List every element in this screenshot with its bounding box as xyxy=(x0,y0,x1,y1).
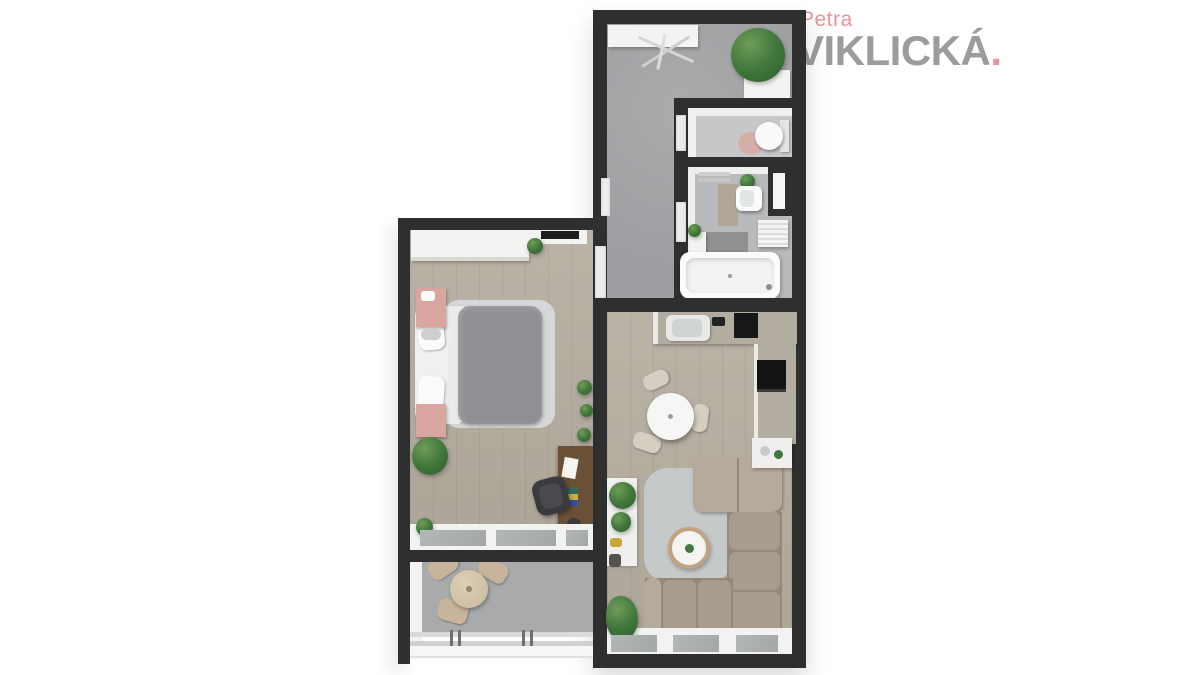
brand-dot: . xyxy=(990,27,1001,74)
living-window-pane xyxy=(611,635,657,652)
bedroom-window-pane xyxy=(496,530,556,546)
shelf-plant xyxy=(774,450,783,459)
office-chair-seat xyxy=(537,482,564,511)
brand-last-name: VIKLICKÁ. xyxy=(796,30,1076,72)
kitchen-sink-basin xyxy=(672,319,702,337)
sofa-seam xyxy=(737,458,739,512)
kitchen-counter-right xyxy=(754,344,796,444)
coffee-table xyxy=(668,527,710,569)
coffee-table-plant xyxy=(685,544,694,553)
wardrobe xyxy=(411,230,529,261)
bathtub-drain xyxy=(728,274,732,278)
living-window-pane xyxy=(673,635,719,652)
shelf-decor-yellow xyxy=(610,538,622,547)
sofa-cushion xyxy=(663,580,696,632)
bedroom-tv xyxy=(541,231,579,239)
sofa-right-section xyxy=(727,512,782,634)
toilet xyxy=(755,122,783,150)
shelf-decor xyxy=(760,446,770,456)
bedroom-window-pane xyxy=(566,530,588,546)
bedroom-plant-large xyxy=(412,437,448,475)
bedroom-door xyxy=(595,246,606,298)
railing-post xyxy=(458,630,461,646)
railing-post xyxy=(522,630,525,646)
shelf-plant-large xyxy=(609,482,636,509)
living-window-pane xyxy=(736,635,778,652)
bathtub-faucet xyxy=(766,284,772,290)
dining-table xyxy=(647,393,694,440)
railing-post xyxy=(530,630,533,646)
railing-post xyxy=(450,630,453,646)
wc-wall-face xyxy=(688,108,792,116)
bathtub xyxy=(680,252,780,299)
bathroom-cabinet-plant xyxy=(688,224,701,237)
brand-last-name-text: VIKLICKÁ xyxy=(796,27,990,74)
wardrobe-plant xyxy=(527,238,543,254)
tissue-box xyxy=(421,291,435,301)
bathroom-door xyxy=(676,202,686,242)
bedside-tray xyxy=(421,329,441,340)
kitchen-sink xyxy=(666,315,710,341)
balcony-table xyxy=(450,570,488,608)
floor-plan-scene: Petra VIKLICKÁ. xyxy=(0,0,1200,675)
nightstand xyxy=(416,404,446,437)
bath-mat-gray xyxy=(702,232,748,254)
sofa-cushion xyxy=(729,552,780,590)
washing-machine xyxy=(758,220,788,247)
sofa-armrest xyxy=(645,578,661,634)
dining-table-center xyxy=(668,414,673,419)
balcony-table-center xyxy=(466,586,472,592)
bath-mat-beige xyxy=(718,184,738,226)
built-in-oven xyxy=(757,360,786,392)
bed-blanket xyxy=(458,306,542,424)
entry-door xyxy=(601,178,610,216)
bedroom-top-wall xyxy=(398,218,607,230)
balcony-slab-edge xyxy=(410,646,593,658)
bedroom-window-pane xyxy=(420,530,486,546)
window-sill-plant xyxy=(577,380,592,395)
hall-kitchen-wall xyxy=(593,298,806,312)
balcony-sill-wall xyxy=(398,550,593,562)
sofa-cushion xyxy=(729,512,780,550)
bedroom-left-wall xyxy=(398,218,410,664)
brand-logo: Petra VIKLICKÁ. xyxy=(796,8,1076,72)
sofa-cushion xyxy=(698,580,731,632)
towel-rail xyxy=(698,172,730,176)
desk-paper xyxy=(561,457,578,479)
sink-basin xyxy=(740,190,754,207)
wc-top-wall xyxy=(674,98,792,108)
shelf-plant-small xyxy=(611,512,631,532)
hall-plant xyxy=(731,28,785,82)
kitchen-low-shelf xyxy=(752,438,792,468)
drying-rack xyxy=(630,30,702,74)
bathroom-window-niche xyxy=(768,166,792,216)
bathroom-sink xyxy=(736,186,762,211)
wc-wall-face xyxy=(688,108,696,157)
sofa-bottom-section xyxy=(645,578,733,634)
cooktop xyxy=(734,313,758,338)
window-sill-plant xyxy=(577,428,591,442)
nightstand xyxy=(416,288,446,327)
living-floor-plant xyxy=(606,596,638,640)
window-sill-plant xyxy=(580,404,593,417)
shelf-decor-dark xyxy=(609,554,621,567)
bathroom-window xyxy=(773,173,785,209)
balcony-railing-rail xyxy=(410,641,593,646)
kitchen-faucet xyxy=(712,317,725,326)
balcony-railing-rail xyxy=(410,632,593,637)
wc-door xyxy=(676,115,686,151)
